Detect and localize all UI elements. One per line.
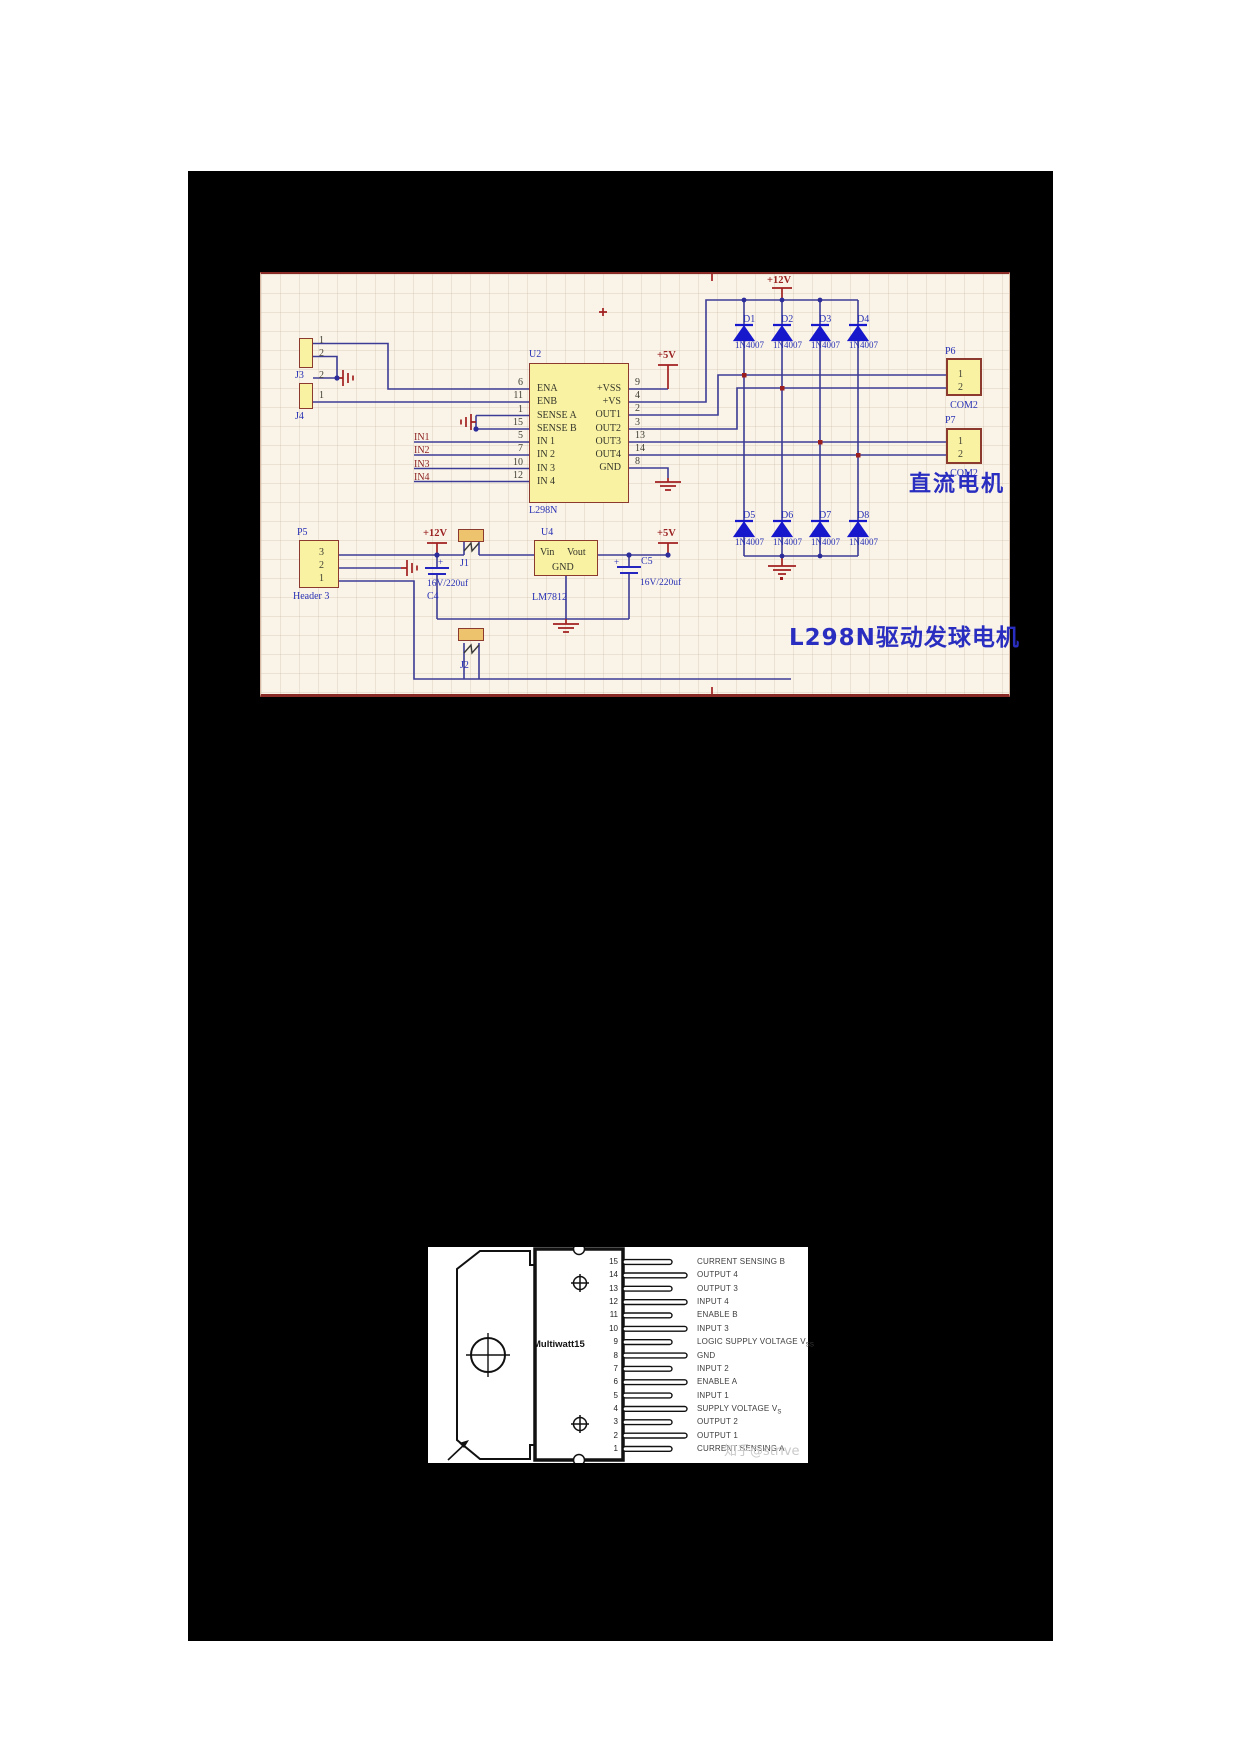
u2-pin-number: 1 xyxy=(491,404,523,415)
diode-label: D6 xyxy=(781,510,793,521)
pinout-pin-number: 4 xyxy=(596,1404,618,1414)
u2-pin-number: 3 xyxy=(635,417,640,428)
diode-part: 1N4007 xyxy=(773,341,802,351)
pinout-pin-number: 12 xyxy=(596,1297,618,1307)
u2-part-label: L298N xyxy=(529,505,557,516)
p5-part-label: Header 3 xyxy=(293,591,329,602)
u4-pin-name: Vout xyxy=(567,547,586,558)
u2-pin-number: 11 xyxy=(491,390,523,401)
u2-pin-name: OUT1 xyxy=(551,409,621,420)
pinout-pin-label: ENABLE B xyxy=(697,1310,738,1324)
pinout-pin-label: CURRENT SENSING B xyxy=(697,1257,785,1271)
j4-connector xyxy=(299,383,313,409)
j1-designator: J1 xyxy=(460,558,469,569)
p7-connector xyxy=(946,428,982,464)
pinout-pin-number: 11 xyxy=(596,1310,618,1320)
p5-pin-number: 1 xyxy=(319,573,324,584)
u2-pin-name: +VSS xyxy=(551,383,621,394)
u4-part-label: LM7812 xyxy=(532,592,567,603)
pinout-pin-label: ENABLE A xyxy=(697,1377,737,1391)
net-label: IN4 xyxy=(414,472,430,483)
u2-pin-number: 14 xyxy=(635,443,645,454)
package-name-label: Multiwatt15 xyxy=(533,1339,597,1350)
pinout-pin-label: SUPPLY VOLTAGE VS xyxy=(697,1404,782,1418)
pinout-pin-number: 14 xyxy=(596,1270,618,1280)
u2-pin-number: 2 xyxy=(635,403,640,414)
pinout-pin-number: 9 xyxy=(596,1337,618,1347)
power-label-12v: +12V xyxy=(767,275,791,287)
pinout-pin-label: INPUT 3 xyxy=(697,1324,729,1338)
power-label-5v: +5V xyxy=(657,350,676,362)
pinout-pin-label: GND xyxy=(697,1351,715,1365)
page-background-panel: U2 L298N ENA ENB SENSE A SENSE B IN 1 IN… xyxy=(188,171,1053,1641)
diode-label: D4 xyxy=(857,314,869,325)
diode-label: D7 xyxy=(819,510,831,521)
pinout-pin-label: INPUT 4 xyxy=(697,1297,729,1311)
diode-part: 1N4007 xyxy=(811,341,840,351)
diode-label: D1 xyxy=(743,314,755,325)
c5-polarity: + xyxy=(614,558,619,568)
u4-pin-name: GND xyxy=(552,562,574,573)
pinout-pin-label: INPUT 2 xyxy=(697,1364,729,1378)
pinout-pin-label: OUTPUT 2 xyxy=(697,1417,738,1431)
u2-pin-name: GND xyxy=(551,462,621,473)
u2-pin-number: 10 xyxy=(491,457,523,468)
j2-jumper xyxy=(458,628,484,641)
c5-designator: C5 xyxy=(641,556,653,567)
watermark: 知乎@strive xyxy=(724,1440,800,1459)
p6-pin-number: 2 xyxy=(958,382,963,393)
net-label: IN2 xyxy=(414,445,430,456)
j3-designator: J3 xyxy=(295,370,304,381)
p6-designator: P6 xyxy=(945,346,956,357)
j4-designator: J4 xyxy=(295,411,304,422)
diode-label: D3 xyxy=(819,314,831,325)
package-outline-graphics xyxy=(428,1247,808,1463)
pinout-pin-number: 3 xyxy=(596,1417,618,1427)
j4-pin-number: 1 xyxy=(319,390,324,401)
diode-part: 1N4007 xyxy=(849,538,878,548)
c4-value: 16V/220uf xyxy=(427,579,468,589)
diode-part: 1N4007 xyxy=(849,341,878,351)
power-label-12v: +12V xyxy=(423,528,447,540)
diode-part: 1N4007 xyxy=(735,341,764,351)
pinout-pin-number: 7 xyxy=(596,1364,618,1374)
pinout-pin-number: 15 xyxy=(596,1257,618,1267)
pinout-pin-number: 13 xyxy=(596,1284,618,1294)
diode-part: 1N4007 xyxy=(735,538,764,548)
u2-pin-name: +VS xyxy=(551,396,621,407)
p7-pin-number: 1 xyxy=(958,436,963,447)
u2-pin-name: OUT4 xyxy=(551,449,621,460)
net-label: IN3 xyxy=(414,459,430,470)
pinout-pin-number: 5 xyxy=(596,1391,618,1401)
u2-pin-number: 8 xyxy=(635,456,640,467)
pinout-pin-number: 10 xyxy=(596,1324,618,1334)
pinout-pin-number: 8 xyxy=(596,1351,618,1361)
c4-polarity: + xyxy=(438,558,443,568)
u2-pin-number: 9 xyxy=(635,377,640,388)
p6-part-label: COM2 xyxy=(939,400,989,411)
schematic-image: U2 L298N ENA ENB SENSE A SENSE B IN 1 IN… xyxy=(260,272,1010,697)
j1-jumper xyxy=(458,529,484,542)
c5-value: 16V/220uf xyxy=(640,578,681,588)
pinout-pin-number: 6 xyxy=(596,1377,618,1387)
u2-pin-number: 7 xyxy=(491,443,523,454)
pinout-pin-label: INPUT 1 xyxy=(697,1391,729,1405)
schematic-title-bottom: L298N驱动发球电机 xyxy=(789,626,1020,651)
j3-pin-number: 1 xyxy=(319,335,324,346)
diode-label: D8 xyxy=(857,510,869,521)
u2-pin-name: OUT2 xyxy=(551,423,621,434)
pinout-pin-number: 2 xyxy=(596,1431,618,1441)
u2-designator: U2 xyxy=(529,349,541,360)
pinout-pin-label: LOGIC SUPPLY VOLTAGE VSS xyxy=(697,1337,814,1351)
c4-designator: C4 xyxy=(427,591,439,602)
u4-pin-name: Vin xyxy=(540,547,554,558)
diode-label: D2 xyxy=(781,314,793,325)
u4-designator: U4 xyxy=(541,527,553,538)
net-label: IN1 xyxy=(414,432,430,443)
pinout-pin-label: OUTPUT 3 xyxy=(697,1284,738,1298)
p5-designator: P5 xyxy=(297,527,308,538)
power-label-5v: +5V xyxy=(657,528,676,540)
p7-pin-number: 2 xyxy=(958,449,963,460)
j4-pin-number: 2 xyxy=(319,370,324,381)
pinout-pin-label: OUTPUT 4 xyxy=(697,1270,738,1284)
p6-connector xyxy=(946,358,982,396)
u2-pin-number: 4 xyxy=(635,390,640,401)
schematic-title-dc-motor: 直流电机 xyxy=(909,473,1005,497)
p7-designator: P7 xyxy=(945,415,956,426)
u2-pin-name: IN 4 xyxy=(537,476,555,487)
j3-pin-number: 2 xyxy=(319,348,324,359)
u2-pin-number: 13 xyxy=(635,430,645,441)
u2-pin-name: OUT3 xyxy=(551,436,621,447)
j2-designator: J2 xyxy=(460,660,469,671)
pinout-pin-number: 1 xyxy=(596,1444,618,1454)
u2-pin-number: 15 xyxy=(491,417,523,428)
u2-pin-number: 12 xyxy=(491,470,523,481)
diode-part: 1N4007 xyxy=(773,538,802,548)
j3-connector xyxy=(299,338,313,368)
document-page: { "colors":{"canvas":"#faf4e8","componen… xyxy=(0,0,1240,1754)
u2-pin-number: 6 xyxy=(491,377,523,388)
pinout-image: Multiwatt15 15 14 13 12 11 10 9 8 7 6 5 … xyxy=(428,1247,808,1463)
p5-pin-number: 3 xyxy=(319,547,324,558)
diode-part: 1N4007 xyxy=(811,538,840,548)
diode-label: D5 xyxy=(743,510,755,521)
p5-pin-number: 2 xyxy=(319,560,324,571)
p6-pin-number: 1 xyxy=(958,369,963,380)
u2-pin-number: 5 xyxy=(491,430,523,441)
